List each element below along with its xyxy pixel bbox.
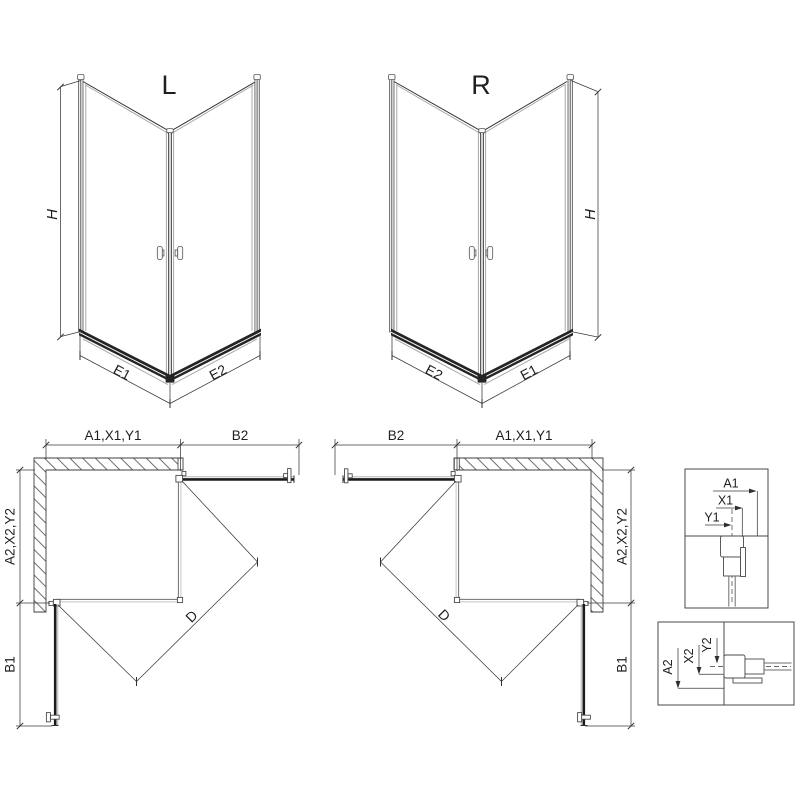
dim-label-x2: X2 bbox=[682, 648, 696, 663]
plan-view-left: D A1,X1,Y1 B2 A2,X2,Y2 B1 bbox=[3, 428, 303, 729]
technical-diagram: L bbox=[0, 0, 800, 800]
door-handle-left bbox=[157, 247, 164, 260]
dim-label-d: D bbox=[435, 606, 453, 624]
dimension-h: H bbox=[44, 81, 81, 341]
open-door-b2 bbox=[183, 469, 294, 483]
base-profiles bbox=[79, 329, 261, 385]
door-handle-left bbox=[469, 247, 476, 260]
corner-connector bbox=[177, 597, 182, 602]
glass-panels bbox=[83, 82, 256, 332]
variant-label-right: R bbox=[471, 70, 491, 100]
dim-label-x1: X1 bbox=[718, 494, 733, 508]
open-door-b1 bbox=[46, 604, 59, 726]
corner-foot bbox=[478, 375, 487, 383]
iso-view-left: L bbox=[44, 70, 261, 408]
dim-label-b2: B2 bbox=[232, 428, 249, 443]
dim-label-a2x2y2: A2,X2,Y2 bbox=[615, 508, 630, 565]
detail-wall-profile-top: A1 X1 Y1 bbox=[685, 469, 768, 608]
dimension-x1: X1 bbox=[716, 494, 743, 537]
door-handle-grip bbox=[345, 469, 348, 483]
wall-hatch bbox=[34, 458, 183, 612]
profile-top-cap bbox=[254, 75, 260, 80]
dim-label-h: H bbox=[44, 209, 61, 220]
glass-panels-closed bbox=[56, 477, 183, 603]
profile-top-cap bbox=[78, 75, 84, 80]
dim-label-b2: B2 bbox=[388, 428, 405, 443]
door-handle-grip bbox=[578, 713, 582, 722]
corner-connector bbox=[454, 597, 459, 602]
plan-view-right: D B2 A1,X1,Y1 A2,X2,Y2 B1 bbox=[332, 428, 635, 729]
dim-label-b1: B1 bbox=[3, 656, 18, 673]
profile-top-cap bbox=[389, 75, 395, 80]
door-handle-right bbox=[486, 247, 493, 260]
dimension-y2: Y2 bbox=[700, 637, 719, 663]
door-handle-plate bbox=[348, 474, 352, 478]
corner-foot bbox=[166, 375, 175, 383]
corner-post bbox=[166, 129, 173, 378]
door-swing: D bbox=[58, 481, 258, 686]
door-handle-right bbox=[175, 247, 183, 260]
dim-label-a1x1y1: A1,X1,Y1 bbox=[84, 428, 141, 443]
shower-enclosure-drawing: L bbox=[0, 0, 800, 800]
dim-label-y1: Y1 bbox=[704, 511, 719, 525]
dim-label-a1x1y1: A1,X1,Y1 bbox=[495, 428, 552, 443]
open-door-b1 bbox=[578, 604, 591, 726]
base-profiles bbox=[391, 329, 573, 385]
door-swing: D bbox=[381, 481, 579, 686]
dim-label-h: H bbox=[582, 209, 599, 220]
dim-label-a1: A1 bbox=[723, 477, 738, 491]
profile-top-cap bbox=[567, 75, 573, 80]
glass-profile-section bbox=[710, 655, 792, 683]
dim-label-b1: B1 bbox=[615, 656, 630, 673]
dim-label-y2: Y2 bbox=[700, 637, 714, 652]
door-handle-grip bbox=[288, 469, 291, 483]
iso-view-right: R bbox=[389, 70, 602, 408]
detail-glass-profile-bottom: A2 X2 Y2 bbox=[658, 622, 794, 705]
door-handle-plate bbox=[582, 715, 591, 719]
corner-post bbox=[478, 129, 485, 378]
wall-hatch bbox=[454, 458, 603, 612]
dim-label-d: D bbox=[182, 607, 200, 625]
dim-label-a2: A2 bbox=[661, 659, 675, 674]
door-handle-grip bbox=[46, 713, 50, 722]
glass-panels-closed bbox=[454, 477, 581, 603]
variant-label-left: L bbox=[161, 70, 176, 100]
dim-label-a2x2y2: A2,X2,Y2 bbox=[3, 508, 18, 565]
dimension-y1: Y1 bbox=[704, 511, 731, 528]
open-door-b2 bbox=[343, 469, 454, 483]
dimension-h: H bbox=[571, 81, 601, 341]
door-handle-plate bbox=[50, 715, 59, 719]
